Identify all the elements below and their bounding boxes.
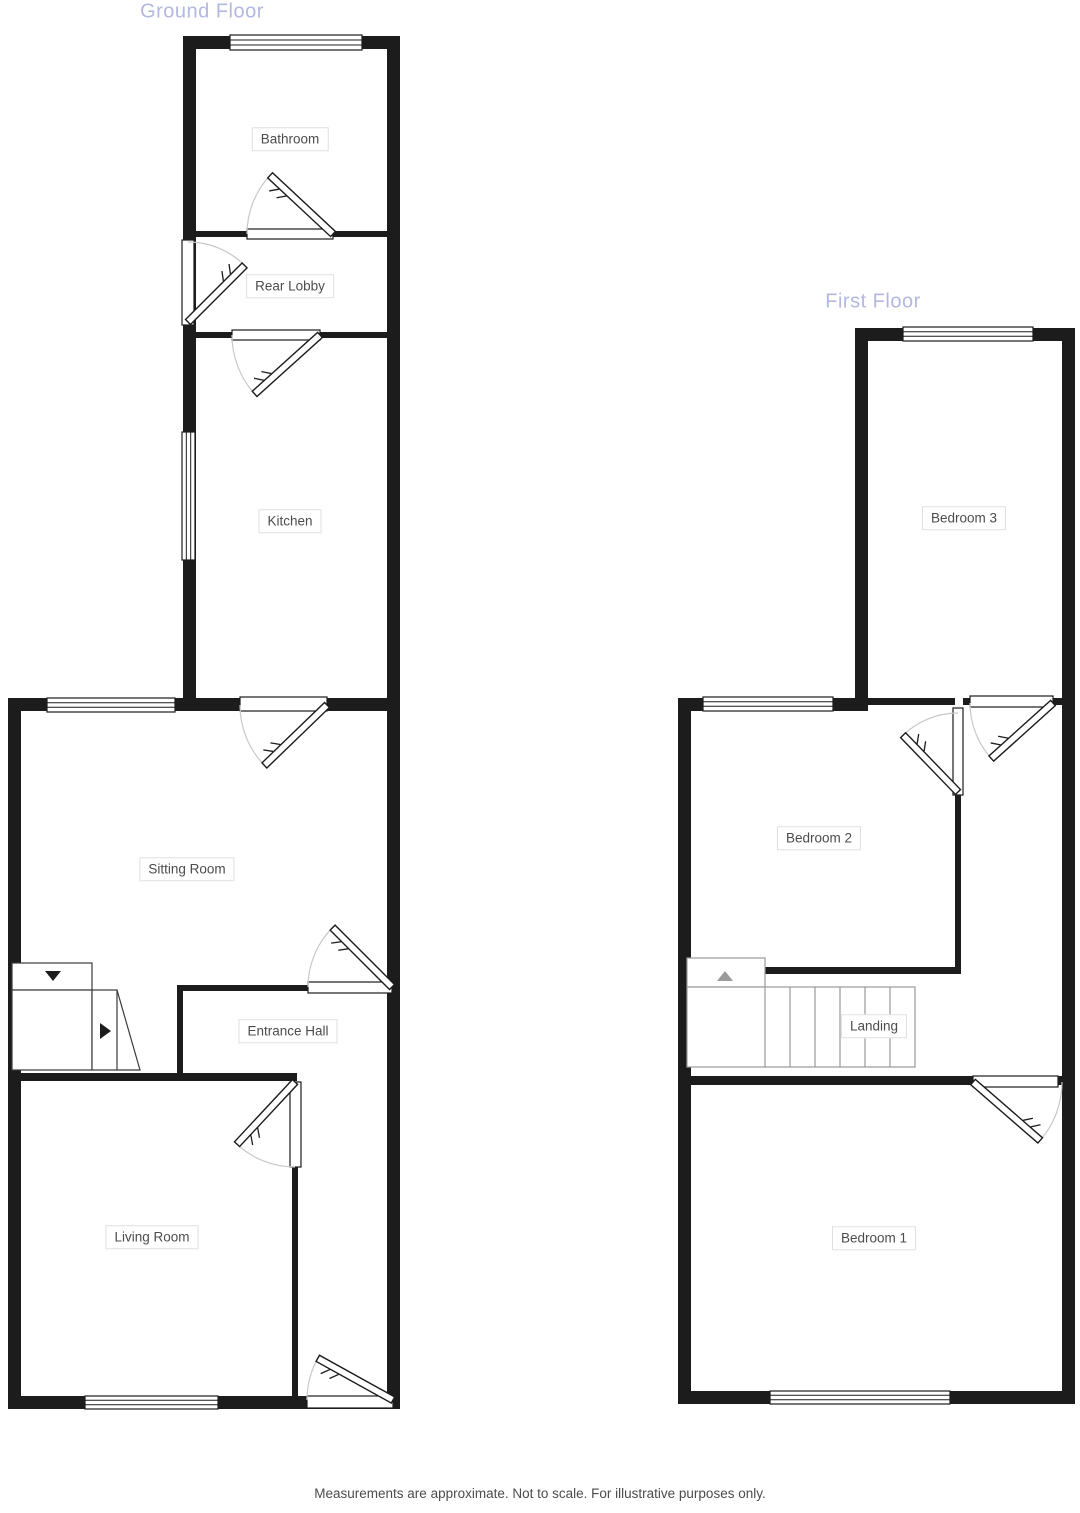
room-label-kitchen: Kitchen xyxy=(258,509,321,533)
bedroom1-window xyxy=(770,1391,950,1404)
bedroom3-window xyxy=(903,327,1033,341)
bathroom-window xyxy=(230,35,362,50)
first-floor-stairs xyxy=(687,958,915,1067)
room-label-sitting-room: Sitting Room xyxy=(139,857,234,881)
floorplan-drawing xyxy=(0,0,1080,1513)
room-label-rear-lobby: Rear Lobby xyxy=(246,274,334,298)
floorplan-page: Ground Floor First Floor Bathroom Rear L… xyxy=(0,0,1080,1513)
room-label-landing: Landing xyxy=(841,1014,907,1038)
first-floor-door-openings xyxy=(953,696,1058,1087)
disclaimer-text: Measurements are approximate. Not to sca… xyxy=(0,1486,1080,1501)
ground-floor-plan xyxy=(8,35,400,1410)
room-label-bedroom-3: Bedroom 3 xyxy=(922,506,1006,530)
room-label-entrance-hall: Entrance Hall xyxy=(238,1019,337,1043)
room-label-living-room: Living Room xyxy=(105,1225,198,1249)
first-floor-title: First Floor xyxy=(825,291,921,314)
sitting-room-window xyxy=(47,698,175,712)
ground-floor-stairs xyxy=(12,963,140,1070)
room-label-bedroom-2: Bedroom 2 xyxy=(777,826,861,850)
ground-floor-walls xyxy=(8,36,400,1409)
room-label-bathroom: Bathroom xyxy=(252,127,329,151)
ground-floor-door-openings xyxy=(182,229,393,1408)
kitchen-window xyxy=(182,432,195,560)
living-room-window xyxy=(85,1396,218,1409)
ground-floor-title: Ground Floor xyxy=(140,1,264,24)
bedroom2-window xyxy=(703,697,833,711)
room-label-bedroom-1: Bedroom 1 xyxy=(832,1226,916,1250)
